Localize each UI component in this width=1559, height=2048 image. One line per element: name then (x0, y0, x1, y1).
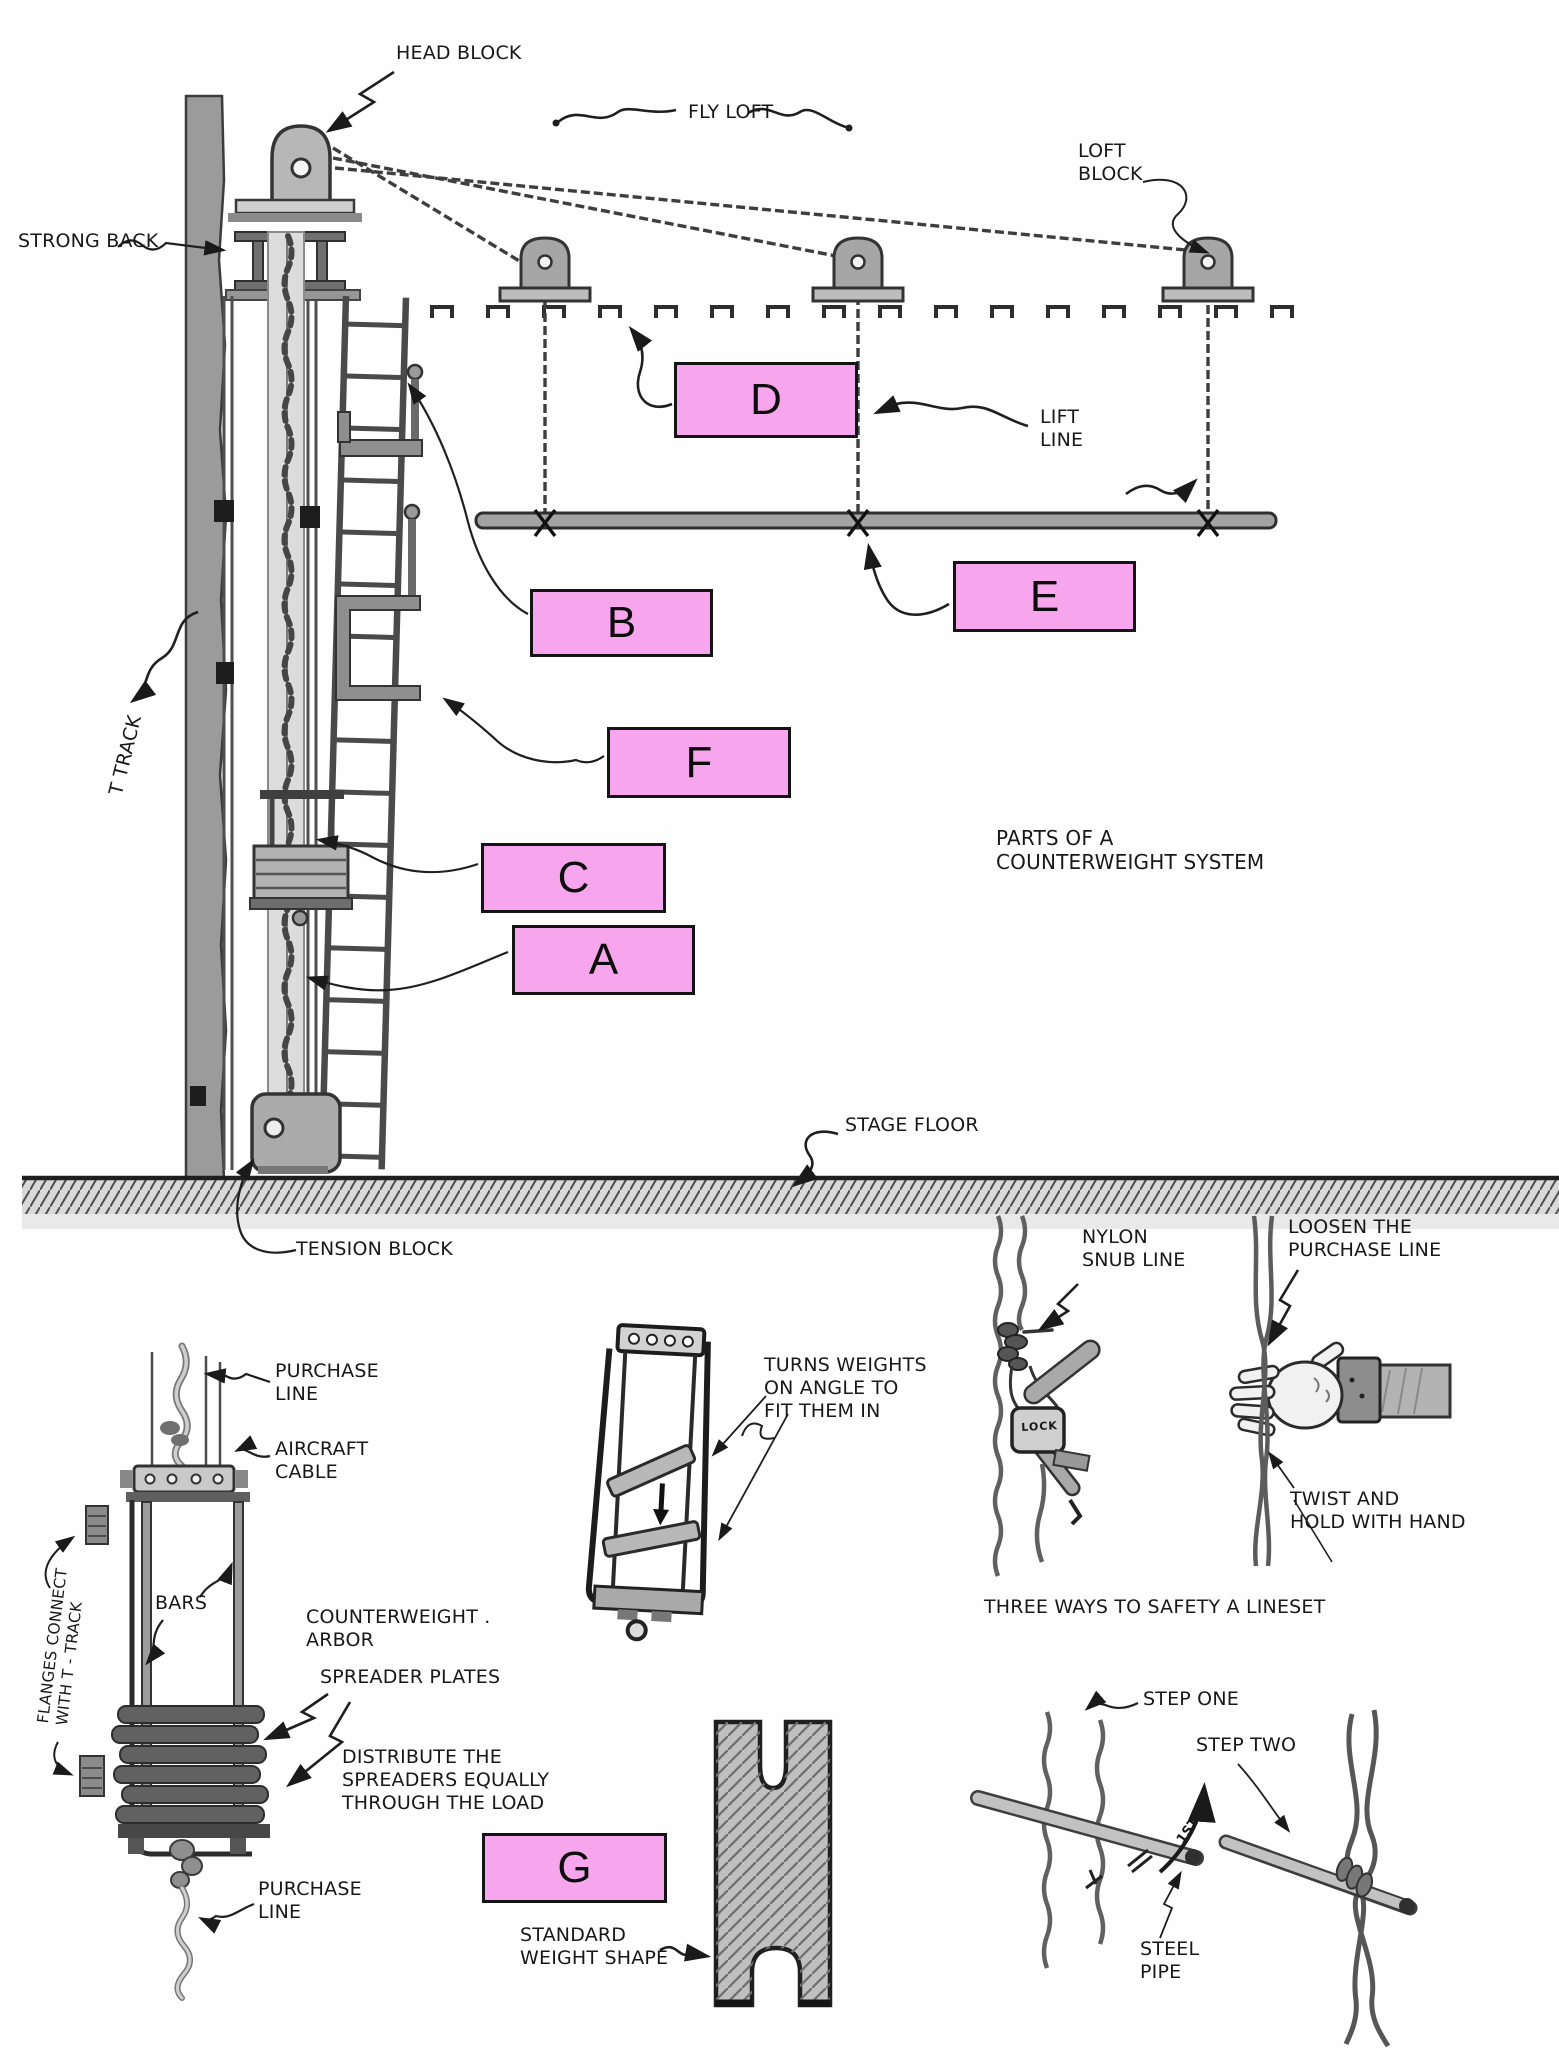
answer-box-c-letter: C (558, 853, 590, 903)
standard-weight-shape (716, 1722, 830, 2005)
batten-pipe (476, 510, 1276, 536)
answer-box-d[interactable]: D (674, 362, 858, 438)
answer-box-a-letter: A (589, 935, 618, 985)
spreader-plates-label: SPREADER PLATES (320, 1666, 500, 1689)
tilted-arbor-sketch (586, 1324, 716, 1643)
answer-box-f-letter: F (686, 738, 713, 788)
strong-back-label: STRONG BACK (18, 230, 158, 253)
spreader-plate-stack (112, 1706, 268, 1823)
loft-block-1 (500, 238, 590, 301)
answer-box-e[interactable]: E (953, 561, 1136, 632)
answer-box-c[interactable]: C (481, 843, 666, 913)
grid-clamp-marks (432, 307, 1292, 318)
rope-lock-text: LOCK (1021, 1419, 1058, 1434)
twist-hold-label: TWIST AND HOLD WITH HAND (1290, 1488, 1466, 1534)
tension-block-drawing (252, 1094, 340, 1174)
answer-box-e-letter: E (1030, 572, 1059, 622)
bars-label: BARS (155, 1592, 207, 1615)
purchase-line-top-label: PURCHASE LINE (275, 1360, 379, 1406)
nylon-snub-label: NYLON SNUB LINE (1082, 1226, 1185, 1272)
counterweight-arbor-label: COUNTERWEIGHT . ARBOR (306, 1606, 490, 1652)
worksheet-page: HEAD BLOCK FLY LOFT LOFT BLOCK STRONG BA… (0, 0, 1559, 2048)
counterweight-diagram-drawing (0, 0, 1559, 2048)
steel-pipe-label: STEEL PIPE (1140, 1938, 1199, 1984)
head-block-label: HEAD BLOCK (396, 42, 522, 65)
step-two-sketch (1226, 1710, 1415, 2046)
loft-block-label: LOFT BLOCK (1078, 140, 1143, 186)
answer-box-g-letter: G (557, 1843, 591, 1893)
distribute-label: DISTRIBUTE THE SPREADERS EQUALLY THROUGH… (342, 1746, 549, 1816)
answer-box-b-letter: B (607, 598, 636, 648)
parts-title: PARTS OF A COUNTERWEIGHT SYSTEM (996, 826, 1264, 875)
lift-line-label: LIFT LINE (1040, 406, 1083, 452)
step-two-label: STEP TWO (1196, 1734, 1296, 1757)
lift-lines (333, 148, 1208, 514)
turns-weights-label: TURNS WEIGHTS ON ANGLE TO FIT THEM IN (764, 1354, 927, 1424)
step-one-sketch (978, 1712, 1204, 1968)
proscenium-wall (186, 96, 226, 1180)
step-one-label: STEP ONE (1143, 1688, 1239, 1711)
loft-block-2 (813, 238, 903, 301)
fly-loft-label: FLY LOFT (688, 101, 773, 124)
answer-box-a[interactable]: A (512, 925, 695, 995)
loft-blocks (500, 238, 1253, 301)
counterweight-arbor-detail (80, 1346, 270, 1998)
stage-floor-label: STAGE FLOOR (845, 1114, 979, 1137)
answer-box-g[interactable]: G (482, 1833, 667, 1903)
answer-box-f[interactable]: F (607, 727, 791, 798)
head-block (228, 126, 362, 222)
tension-block-label: TENSION BLOCK (296, 1238, 453, 1261)
three-ways-label: THREE WAYS TO SAFETY A LINESET (984, 1596, 1325, 1619)
flange-brackets (80, 1506, 108, 1796)
purchase-line-bottom-label: PURCHASE LINE (258, 1878, 362, 1924)
answer-box-b[interactable]: B (530, 589, 713, 657)
aircraft-cable-label: AIRCRAFT CABLE (275, 1438, 368, 1484)
answer-box-d-letter: D (750, 375, 782, 425)
standard-weight-label: STANDARD WEIGHT SHAPE (520, 1924, 668, 1970)
escape-ladder (322, 296, 406, 1169)
loosen-label: LOOSEN THE PURCHASE LINE (1288, 1216, 1441, 1262)
arbor-guide-column (268, 232, 304, 1168)
